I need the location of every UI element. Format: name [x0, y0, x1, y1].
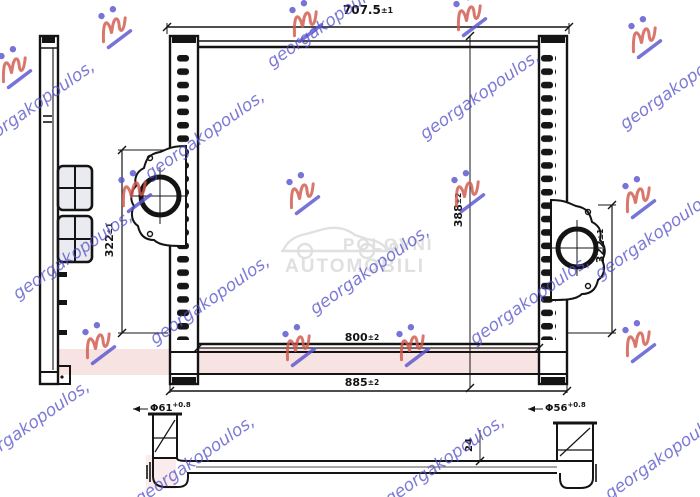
technical-drawing-canvas: POLOVNI AUTOMOBILI — [0, 0, 700, 497]
svg-text:800±2: 800±2 — [345, 331, 379, 344]
brand-stamp-icon — [624, 13, 663, 58]
svg-text:885±2: 885±2 — [345, 376, 379, 389]
front-view — [131, 36, 605, 384]
svg-text:Φ56+0.8: Φ56+0.8 — [545, 401, 586, 414]
dim-top-width: 707.5±1 — [163, 3, 573, 34]
dim-right-port: Φ56+0.8 — [528, 401, 586, 414]
brand-stamp-icon — [449, 0, 488, 36]
brand-stamp-icon — [618, 317, 657, 362]
brand-stamp-icon — [0, 43, 33, 88]
watermark-name-text: georgakopoulos, — [601, 407, 700, 497]
watermark-name-text: georgakopoulos, — [381, 412, 508, 497]
watermark-name-text: georgakopoulos, — [416, 47, 543, 145]
brand-stamp-icon — [94, 3, 133, 48]
watermark-name-text: georgakopoulos, — [131, 412, 258, 497]
watermark-name-text: georgakopoulos, — [146, 252, 273, 350]
brand-stamp-icon — [618, 173, 657, 218]
drawing-page: POLOVNI AUTOMOBILI — [0, 0, 700, 497]
watermark-name-text: georgakopoulos, — [616, 37, 700, 135]
dim-overall-width: 885±2 — [166, 376, 571, 395]
side-port-upper — [58, 166, 92, 210]
watermark-name-text: georgakopoulos, — [0, 377, 94, 475]
brand-stamp-icon — [282, 169, 321, 214]
watermark-name-text: georgakopoulos, — [141, 87, 268, 185]
right-fitting — [553, 423, 597, 488]
dim-left-port: Φ61+0.8 — [133, 401, 191, 414]
watermark-name-text: georgakopoulos, — [466, 252, 593, 350]
svg-text:Φ61+0.8: Φ61+0.8 — [150, 401, 191, 414]
